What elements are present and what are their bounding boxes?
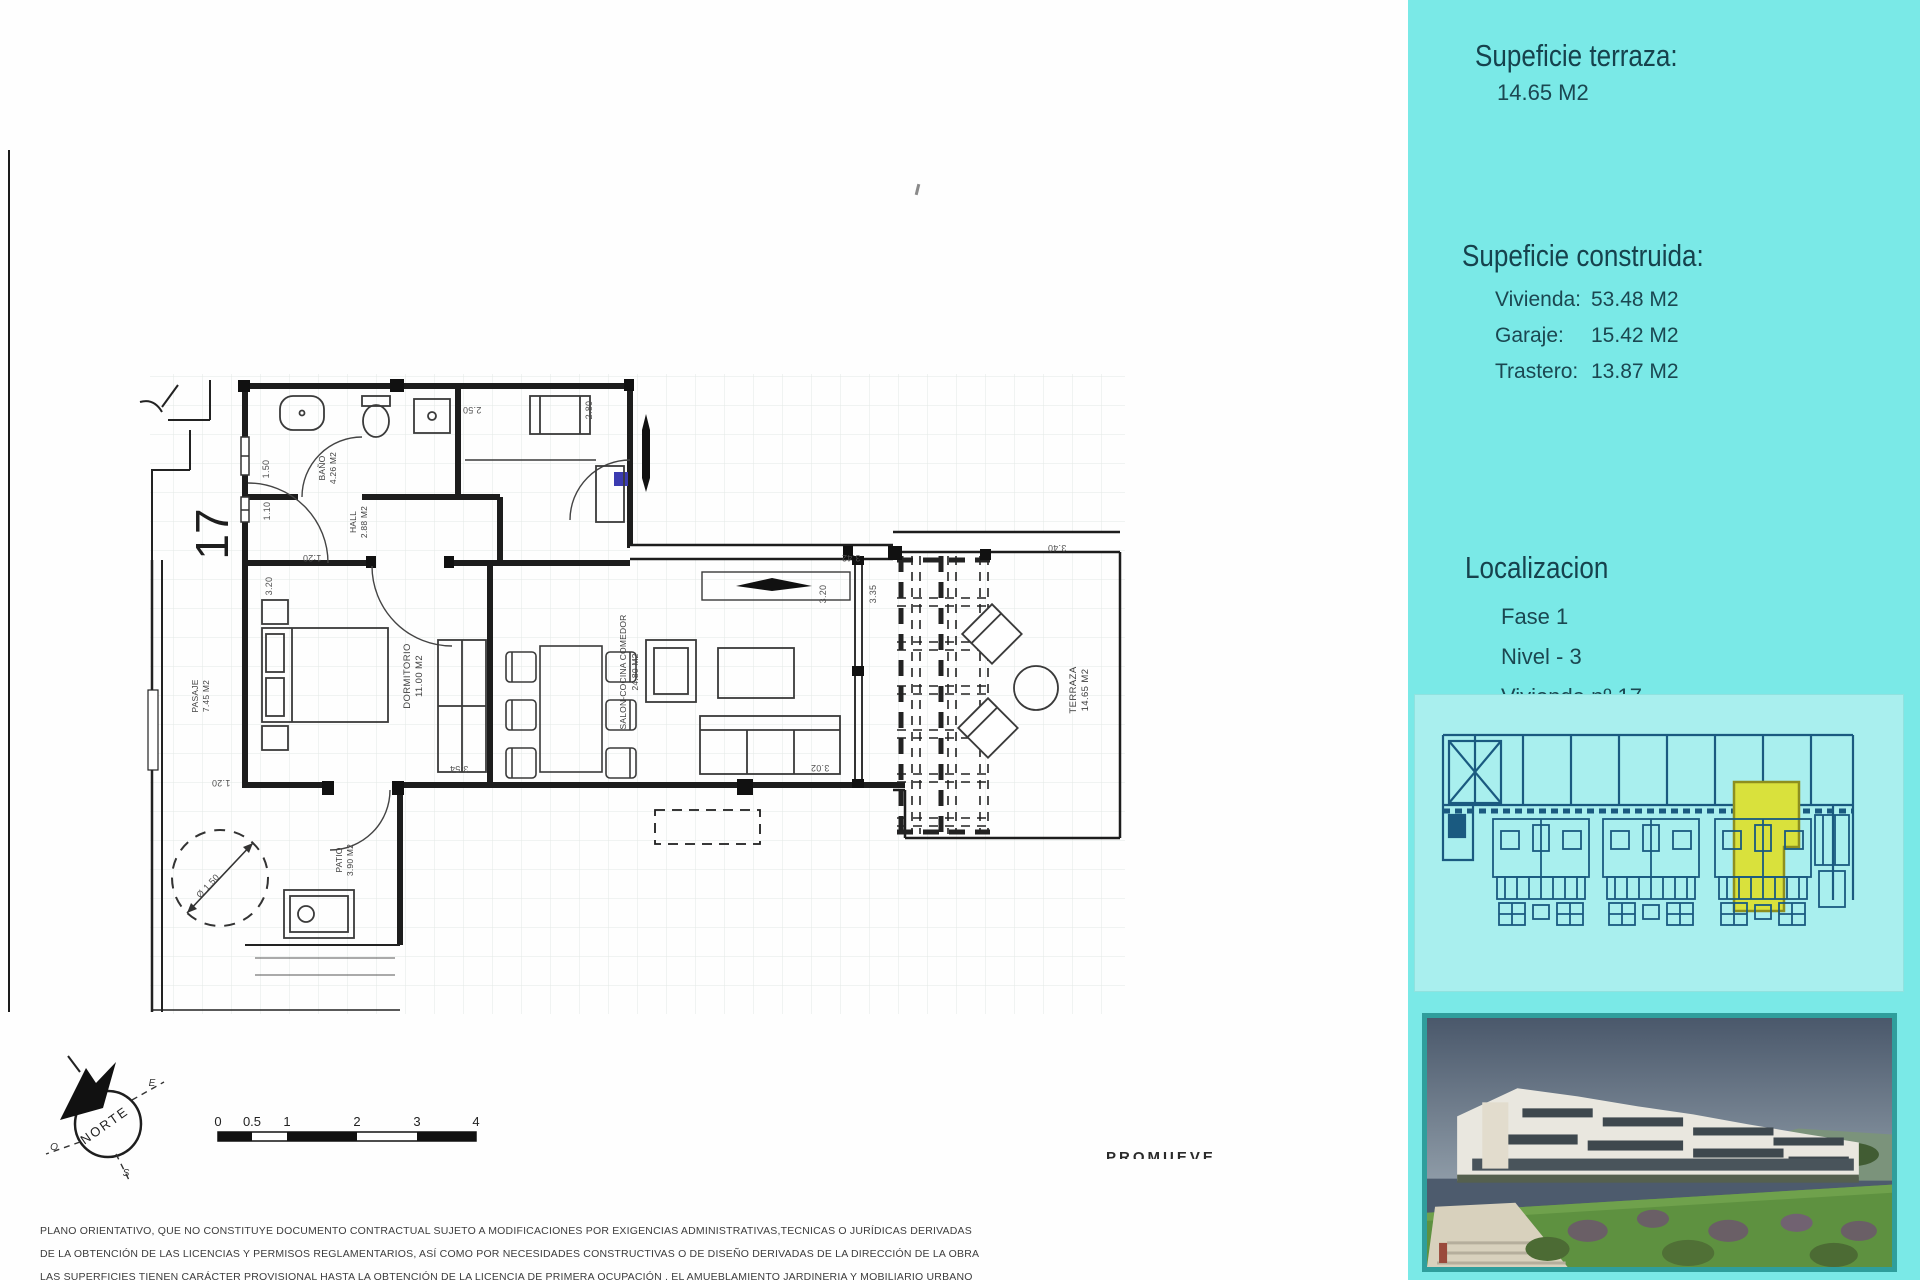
svg-text:2.50: 2.50	[463, 405, 482, 415]
svg-text:2.80: 2.80	[584, 401, 594, 420]
disclaimer-line-2: DE LA OBTENCIÓN DE LAS LICENCIAS Y PERMI…	[40, 1243, 960, 1266]
location-fase: Fase 1	[1501, 604, 1568, 630]
disclaimer-text: PLANO ORIENTATIVO, QUE NO CONSTITUYE DOC…	[40, 1220, 960, 1280]
svg-text:2: 2	[353, 1114, 360, 1129]
siteplan-key-image	[1414, 694, 1904, 992]
svg-text:PASAJE: PASAJE	[190, 679, 200, 712]
svg-text:0.5: 0.5	[243, 1114, 261, 1129]
room-label-bano: BAÑO 4.26 M2	[317, 452, 338, 484]
photo-figure	[1439, 1243, 1447, 1263]
svg-text:TERRAZA: TERRAZA	[1068, 666, 1079, 713]
terrace-area-value: 14.65 M2	[1497, 80, 1589, 106]
svg-text:PATIO: PATIO	[334, 847, 344, 872]
unit-number-label: 17	[186, 508, 238, 559]
promoter-label-clipped: PROMUEVE	[1106, 1150, 1266, 1159]
svg-text:3: 3	[413, 1114, 420, 1129]
built-area-heading: Supeficie construida:	[1462, 238, 1750, 274]
svg-text:3.42: 3.42	[842, 553, 861, 563]
room-label-pasaje: PASAJE 7.45 M2	[190, 679, 211, 712]
svg-text:3.02: 3.02	[811, 763, 830, 773]
svg-text:3.90 M2: 3.90 M2	[345, 844, 355, 876]
svg-text:0: 0	[214, 1114, 221, 1129]
svg-text:7.45 M2: 7.45 M2	[201, 680, 211, 712]
info-sidebar: Supeficie terraza: 14.65 M2 Supeficie co…	[1408, 0, 1920, 1280]
north-compass: NORTE E O S	[46, 1056, 164, 1182]
compass-south-label: S	[123, 1168, 130, 1179]
photo-hedge	[1457, 1175, 1859, 1183]
svg-text:1: 1	[283, 1114, 290, 1129]
compass-east-label: E	[149, 1078, 156, 1089]
svg-text:DORMITORIO: DORMITORIO	[402, 643, 413, 709]
svg-text:1.50: 1.50	[261, 460, 271, 479]
built-row-garaje: Garaje:15.42 M2	[1495, 324, 1679, 348]
svg-text:4: 4	[472, 1114, 479, 1129]
svg-text:3.40: 3.40	[1048, 543, 1067, 553]
svg-text:24.80 M2: 24.80 M2	[630, 653, 640, 690]
svg-text:HALL: HALL	[348, 511, 358, 533]
svg-text:1.20: 1.20	[212, 778, 231, 788]
floor-plan-drawing: 17 BAÑO 4.26 M2 HALL 2.88 M2 PASAJE 7.45…	[0, 0, 1408, 1280]
compass-west-label: O	[50, 1142, 58, 1153]
electrical-symbol	[614, 472, 628, 486]
svg-text:BAÑO: BAÑO	[317, 455, 327, 480]
room-label-patio: PATIO 3.90 M2	[334, 844, 355, 876]
entry-door-marker	[642, 414, 650, 492]
svg-text:3.35: 3.35	[868, 585, 878, 604]
photo-tower	[1482, 1102, 1508, 1168]
scale-bar: 0 0.5 1 2 3 4	[214, 1114, 479, 1141]
siteplan-unit-clusters	[1493, 815, 1849, 925]
room-label-terraza: TERRAZA 14.65 M2	[1068, 666, 1091, 713]
svg-text:3.20: 3.20	[264, 577, 274, 596]
building-render-photo	[1422, 1013, 1897, 1272]
svg-text:3.20: 3.20	[818, 585, 828, 604]
location-nivel: Nivel - 3	[1501, 644, 1582, 670]
terraza-top-wall	[893, 532, 1120, 552]
built-row-trastero: Trastero:13.87 M2	[1495, 360, 1679, 384]
terrace-area-heading: Supeficie terraza:	[1475, 38, 1716, 74]
built-row-vivienda: Vivienda:53.48 M2	[1495, 288, 1679, 312]
svg-text:3.54: 3.54	[450, 764, 469, 774]
svg-text:4.26 M2: 4.26 M2	[328, 452, 338, 484]
svg-text:1:20: 1:20	[303, 553, 322, 563]
svg-text:11.00 M2: 11.00 M2	[414, 655, 425, 697]
svg-text:SALON-COCINA COMEDOR: SALON-COCINA COMEDOR	[618, 615, 628, 730]
svg-text:1.10: 1.10	[262, 502, 272, 521]
disclaimer-line-3: LAS SUPERFICIES TIENEN CARÁCTER PROVISIO…	[40, 1266, 960, 1280]
disclaimer-line-1: PLANO ORIENTATIVO, QUE NO CONSTITUYE DOC…	[40, 1220, 960, 1243]
plan-sheet-page: 17 BAÑO 4.26 M2 HALL 2.88 M2 PASAJE 7.45…	[0, 0, 1920, 1280]
svg-text:2.88 M2: 2.88 M2	[359, 506, 369, 538]
highlighted-unit-17	[1734, 782, 1799, 911]
svg-text:14.65 M2: 14.65 M2	[1080, 669, 1091, 712]
location-heading: Localizacion	[1465, 550, 1636, 586]
